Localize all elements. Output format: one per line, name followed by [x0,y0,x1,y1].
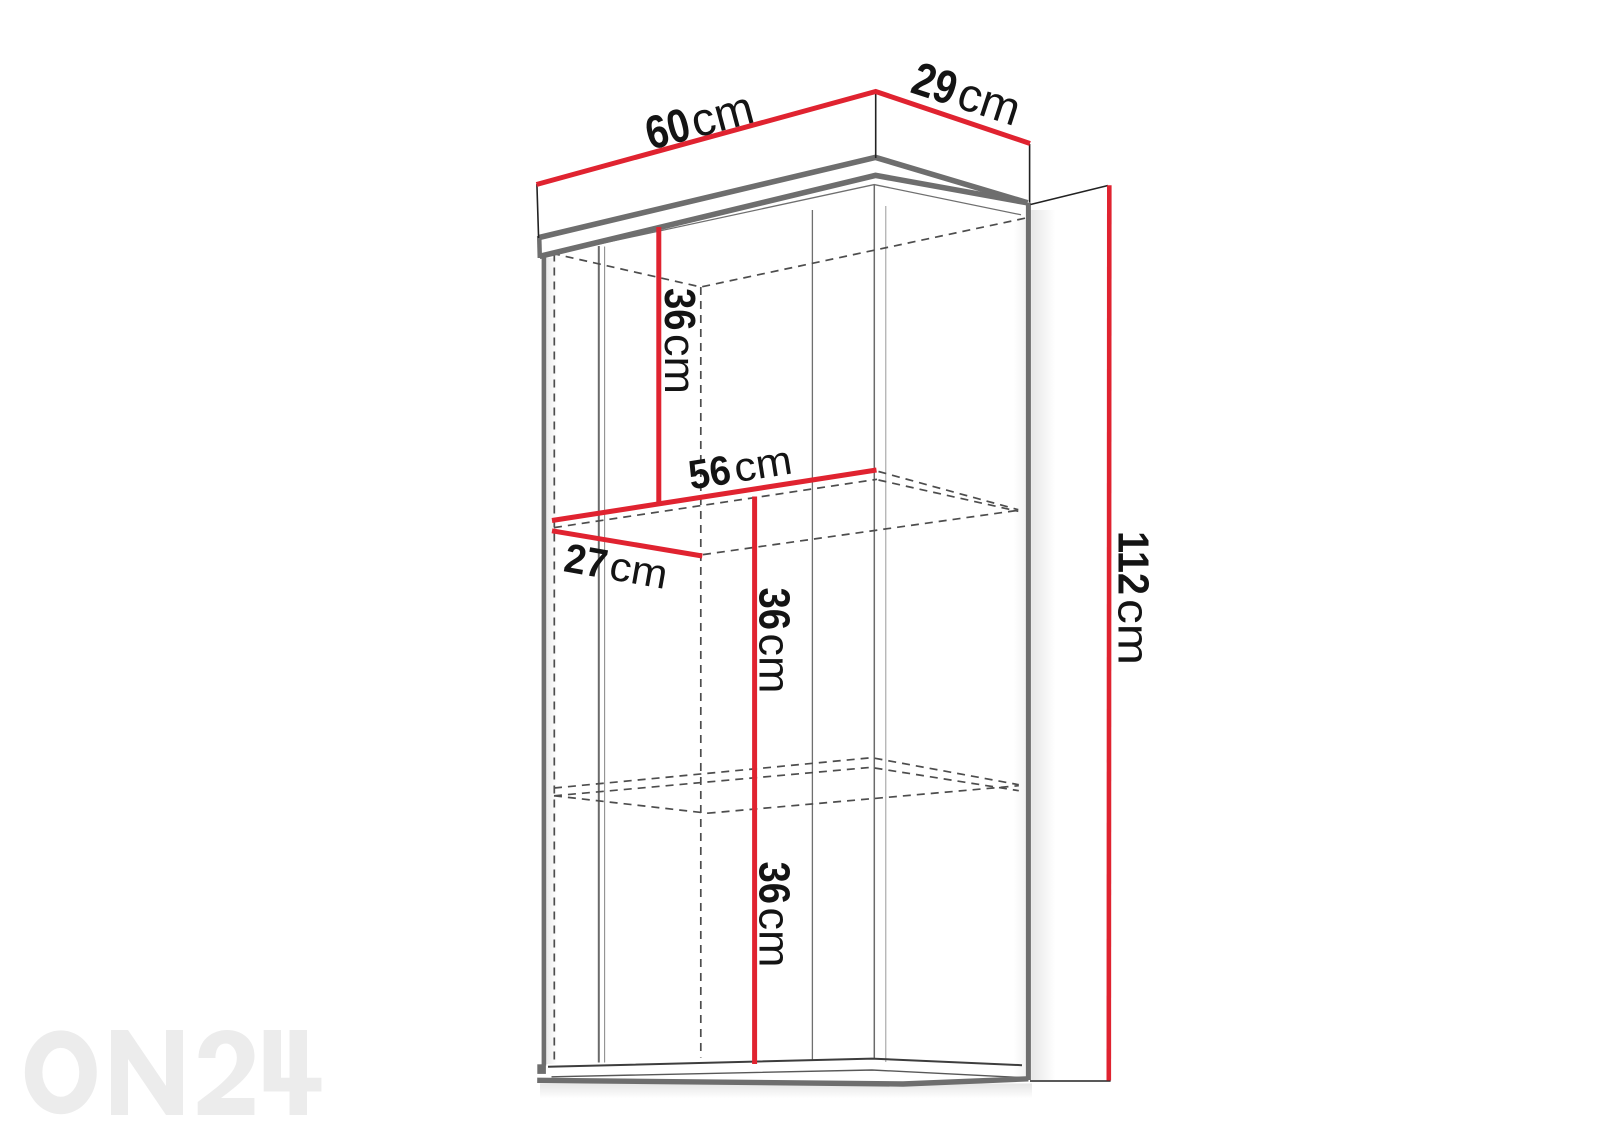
svg-text:112: 112 [1108,531,1157,595]
svg-text:cm: cm [731,437,795,492]
svg-text:36: 36 [749,588,798,631]
svg-text:cm: cm [749,908,798,968]
svg-text:56: 56 [685,446,734,498]
svg-text:cm: cm [655,334,704,394]
svg-text:36: 36 [655,288,704,331]
svg-text:cm: cm [749,634,798,694]
svg-text:36: 36 [749,862,798,905]
svg-text:cm: cm [1108,599,1157,665]
svg-text:27: 27 [561,535,611,588]
